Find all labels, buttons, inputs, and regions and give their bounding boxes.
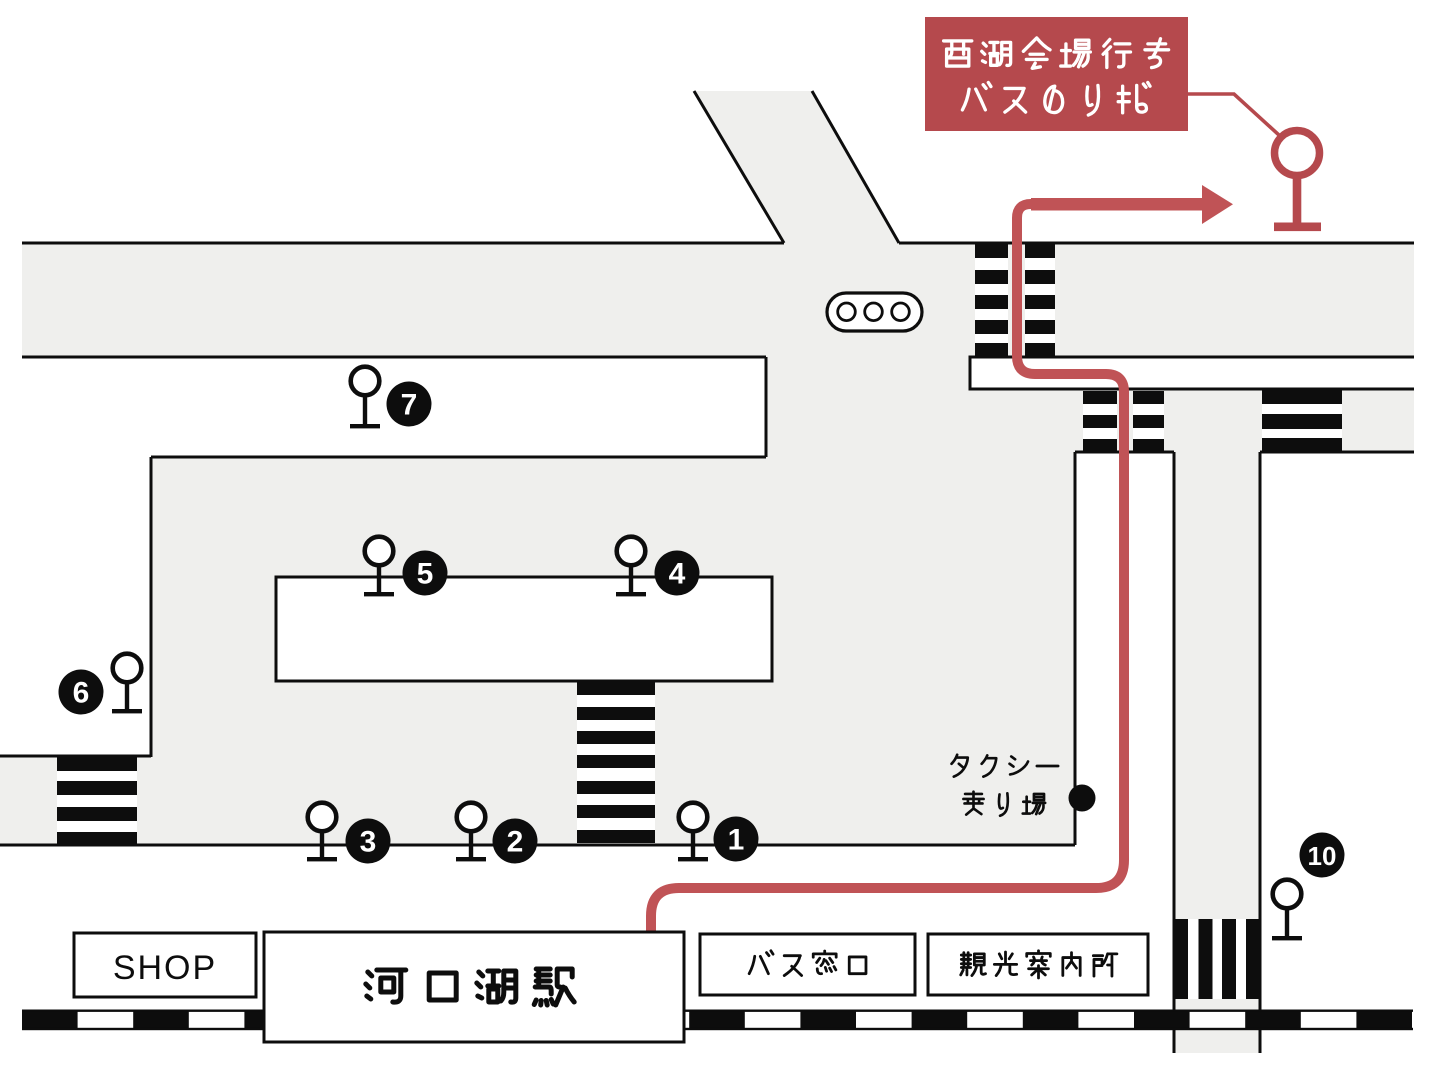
svg-text:7: 7 <box>401 389 418 422</box>
svg-text:6: 6 <box>73 677 90 710</box>
svg-text:SHOP: SHOP <box>113 949 217 987</box>
svg-text:10: 10 <box>1308 841 1337 871</box>
svg-text:2: 2 <box>507 826 524 859</box>
svg-text:1: 1 <box>728 824 745 857</box>
svg-text:4: 4 <box>669 558 686 591</box>
svg-text:5: 5 <box>417 558 434 591</box>
svg-text:3: 3 <box>360 826 377 859</box>
